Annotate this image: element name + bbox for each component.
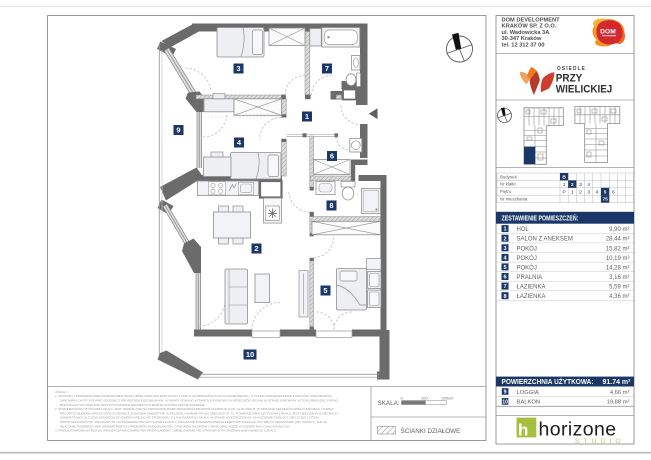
svg-text:1. WYMIARY I POWIERZCHNIE POM: 1. WYMIARY I POWIERZCHNIE POMIESZCZEŃ OR… <box>55 393 332 398</box>
svg-text:7: 7 <box>325 64 329 73</box>
svg-text:Nr klatki: Nr klatki <box>500 182 516 187</box>
svg-text:4: 4 <box>596 189 599 195</box>
svg-text:DOM DEVELOPMENT: DOM DEVELOPMENT <box>502 18 561 24</box>
svg-text:PROJEKTU BUDOWLANEGO ORAZ ZGOD: PROJEKTU BUDOWLANEGO ORAZ ZGODNIE Z ZASA… <box>60 410 338 415</box>
svg-text:tel. 12 312 37 00: tel. 12 312 37 00 <box>502 42 545 48</box>
svg-text:LOGGIA: LOGGIA <box>517 390 539 396</box>
svg-text:9: 9 <box>176 126 180 135</box>
svg-text:SANITARNYCH ITP. PODANO ZGODNI: SANITARNYCH ITP. PODANO ZGODNIE Z PROJEK… <box>60 398 339 403</box>
svg-text:4,36 m²: 4,36 m² <box>609 294 629 300</box>
svg-text:8: 8 <box>503 294 506 300</box>
svg-text:2: 2 <box>579 189 582 195</box>
svg-text:KRAKÓW SP. Z O.O.: KRAKÓW SP. Z O.O. <box>502 22 557 30</box>
svg-text:10,19 m²: 10,19 m² <box>606 256 630 262</box>
svg-text:DOM: DOM <box>600 29 616 36</box>
svg-text:200cm: 200cm <box>442 395 455 400</box>
svg-text:7: 7 <box>503 284 506 290</box>
svg-text:POKÓJ: POKÓJ <box>517 264 537 271</box>
svg-text:ul. Wadowicka 3A: ul. Wadowicka 3A <box>502 30 550 36</box>
svg-text:1: 1 <box>563 182 566 188</box>
svg-text:15,82 m²: 15,82 m² <box>606 246 630 252</box>
svg-text:2: 2 <box>254 244 258 253</box>
svg-text:3: 3 <box>579 182 582 188</box>
svg-text:2: 2 <box>571 182 574 188</box>
svg-text:h: h <box>518 420 528 439</box>
svg-text:6: 6 <box>503 275 506 281</box>
svg-text:9,90 m²: 9,90 m² <box>609 227 629 233</box>
svg-text:9: 9 <box>504 390 507 396</box>
svg-text:10: 10 <box>246 350 254 359</box>
svg-text:WIELICKIEJ: WIELICKIEJ <box>556 84 613 96</box>
svg-text:POKÓJ: POKÓJ <box>517 245 537 252</box>
svg-text:BUDOWLANYCH MOŻLIWE JEST WYSTĄ: BUDOWLANYCH MOŻLIWE JEST WYSTĄPIENIE NIE… <box>60 402 206 407</box>
svg-text:28,44 m²: 28,44 m² <box>606 237 630 243</box>
svg-text:SALON Z ANEKSEM: SALON Z ANEKSEM <box>517 237 573 243</box>
svg-text:5: 5 <box>604 189 607 195</box>
svg-text:ŚCIANKI DZIAŁOWE: ŚCIANKI DZIAŁOWE <box>401 426 461 435</box>
svg-text:1: 1 <box>571 189 574 195</box>
svg-text:ZESTAWIENIE POMIESZCZEŃ:: ZESTAWIENIE POMIESZCZEŃ: <box>502 213 579 222</box>
svg-text:2: 2 <box>503 236 506 242</box>
svg-text:OSIEDLE: OSIEDLE <box>557 66 586 72</box>
svg-text:10: 10 <box>502 399 508 405</box>
svg-text:ŁAZIENKA: ŁAZIENKA <box>517 285 546 291</box>
svg-text:4,66 m²: 4,66 m² <box>610 390 630 396</box>
svg-text:75: 75 <box>602 197 608 203</box>
svg-text:3: 3 <box>503 246 506 252</box>
svg-text:SKALA:: SKALA: <box>378 400 400 407</box>
svg-text:ŁAZIENKA: ŁAZIENKA <box>517 294 546 300</box>
svg-text:5: 5 <box>323 286 327 295</box>
svg-text:14,28 m²: 14,28 m² <box>606 265 630 271</box>
svg-text:WLICZANE POWIERZCHNIE WEWNĘTRZ: WLICZANE POWIERZCHNIE WEWNĘTRZNYCH PRZEG… <box>60 423 290 428</box>
svg-text:5: 5 <box>503 265 506 271</box>
svg-text:100: 100 <box>421 395 428 400</box>
svg-text:4: 4 <box>587 182 590 188</box>
svg-text:2. POWIERZCHNIA UŻYTKOWA LOKA: 2. POWIERZCHNIA UŻYTKOWA LOKALU JEST OKR… <box>55 406 334 411</box>
svg-text:91.74 m²: 91.74 m² <box>602 379 631 386</box>
svg-text:POKÓJ: POKÓJ <box>517 255 537 262</box>
svg-text:3,16 m²: 3,16 m² <box>609 275 629 281</box>
svg-text:PRALNIA: PRALNIA <box>517 275 543 281</box>
svg-text:BALKON: BALKON <box>517 400 541 406</box>
svg-text:B: B <box>562 175 566 181</box>
svg-text:3: 3 <box>587 189 590 195</box>
svg-text:8: 8 <box>329 201 333 210</box>
svg-text:POWIERZCHNIA UŻYTKOWA:: POWIERZCHNIA UŻYTKOWA: <box>502 378 594 386</box>
svg-text:Piętro: Piętro <box>500 189 512 194</box>
svg-text:19,88 m²: 19,88 m² <box>607 400 630 406</box>
svg-text:P: P <box>562 189 565 195</box>
svg-text:PRZYPODŁOGOWYCH, PROGÓW ITP. D: PRZYPODŁOGOWYCH, PROGÓW ITP. DO POWIERZC… <box>60 419 328 424</box>
svg-text:STUDIO: STUDIO <box>575 438 625 445</box>
svg-text:5,59 m²: 5,59 m² <box>609 285 629 291</box>
svg-text:6: 6 <box>612 189 615 195</box>
svg-text:Nr mieszkania: Nr mieszkania <box>500 197 528 202</box>
svg-text:6: 6 <box>330 152 334 161</box>
svg-text:UWAGA:: UWAGA: <box>55 390 68 394</box>
svg-text:30-347 Kraków: 30-347 Kraków <box>502 36 542 42</box>
svg-text:1: 1 <box>305 112 309 121</box>
svg-text:3. PRZEDSTAWIONA NA RZUCIE AR: 3. PRZEDSTAWIONA NA RZUCIE ARANŻACJA MA … <box>55 428 277 433</box>
svg-text:HOL: HOL <box>517 227 530 233</box>
svg-text:Budynek: Budynek <box>500 174 518 179</box>
svg-text:3: 3 <box>236 64 240 73</box>
svg-text:KWADRATOWYCH Z DOKŁADNOŚCIĄ DO: KWADRATOWYCH Z DOKŁADNOŚCIĄ DO DWÓCH MIE… <box>60 415 319 420</box>
svg-text:1: 1 <box>503 227 506 233</box>
